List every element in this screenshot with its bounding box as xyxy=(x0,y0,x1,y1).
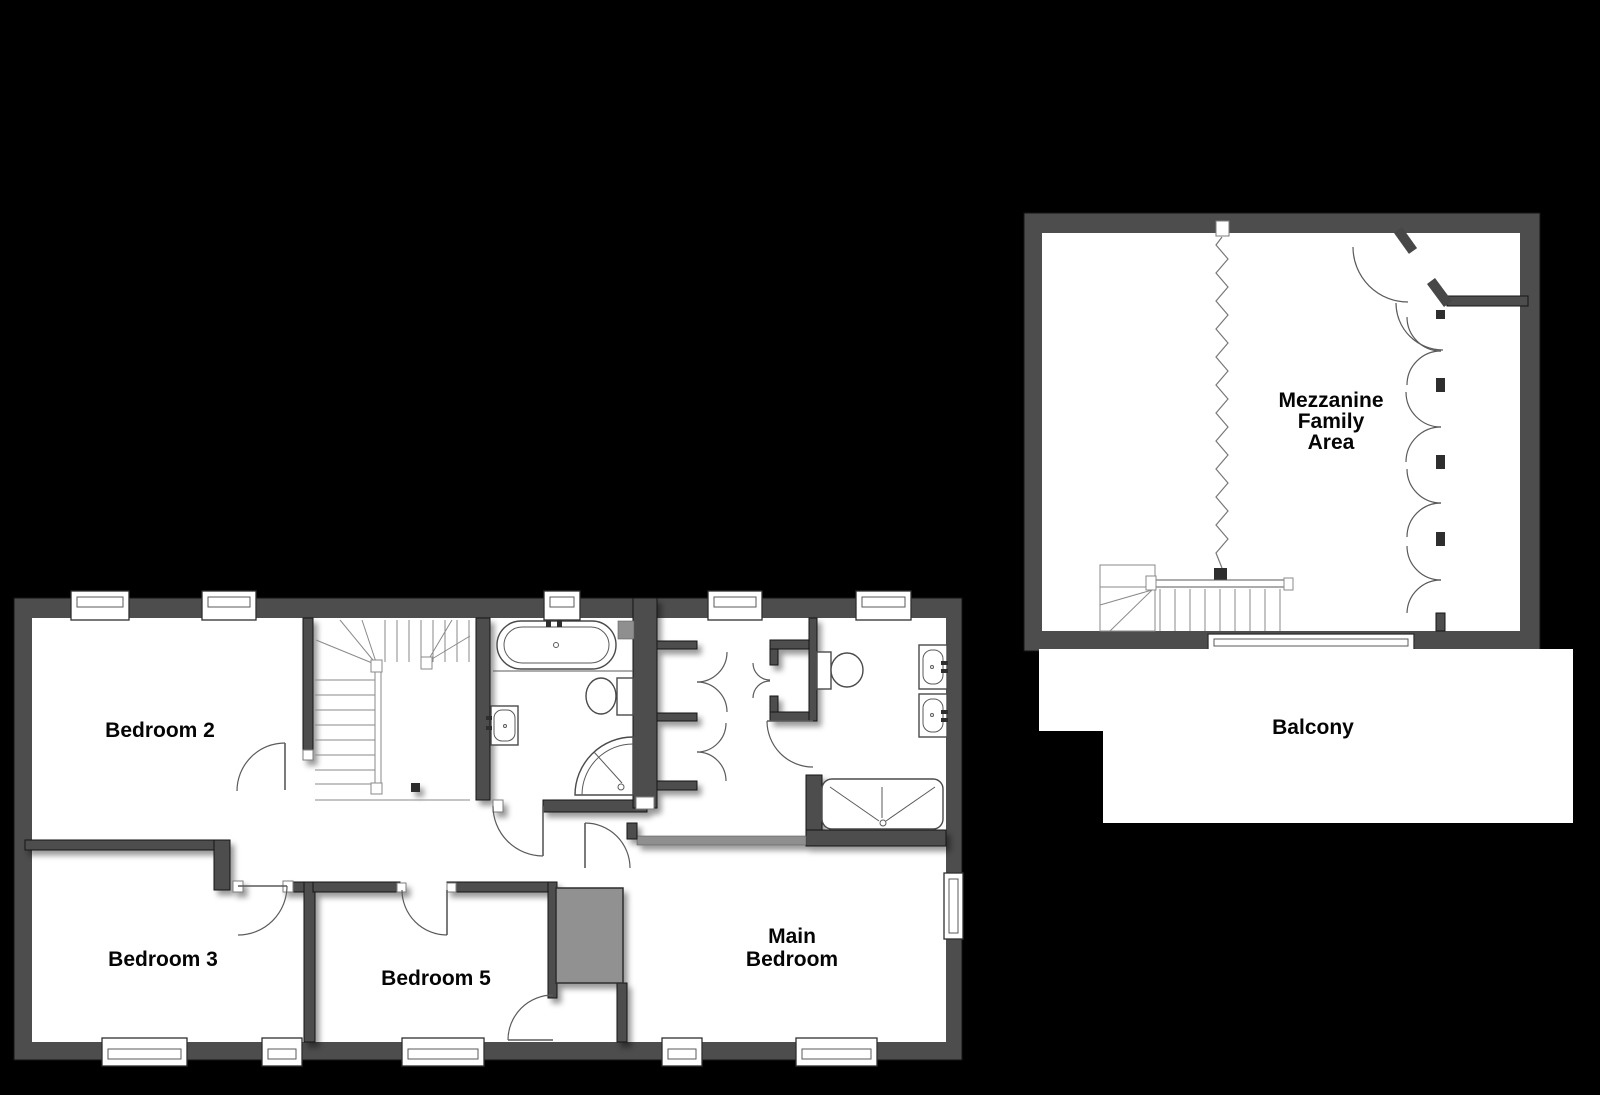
window xyxy=(262,1038,302,1066)
toilet-bathroom xyxy=(586,678,633,715)
small-room-wall xyxy=(1447,296,1528,306)
floorplan-canvas: Bedroom 2 Bedroom 3 Bedroom 5 Main Bedro… xyxy=(0,0,1600,1095)
bedroom-floor-plan: Bedroom 2 Bedroom 3 Bedroom 5 Main Bedro… xyxy=(14,591,963,1066)
window xyxy=(708,591,762,620)
tap-icon xyxy=(486,726,492,730)
window xyxy=(662,1038,702,1066)
tap-icon xyxy=(941,669,948,673)
toilet-ensuite xyxy=(817,652,863,689)
floorplan-svg: Bedroom 2 Bedroom 3 Bedroom 5 Main Bedro… xyxy=(0,0,1600,1095)
shower-tray xyxy=(822,779,943,829)
door-stop xyxy=(411,783,420,792)
room-label-bedroom3: Bedroom 3 xyxy=(108,948,218,971)
tap-icon xyxy=(486,716,492,720)
window xyxy=(71,591,129,620)
svg-text:Bedroom: Bedroom xyxy=(746,948,838,971)
mezzanine-plan: Mezzanine Family Area xyxy=(1024,213,1540,651)
room-label-balcony: Balcony xyxy=(1272,716,1354,739)
gray-stub-wall xyxy=(637,836,806,845)
svg-text:Main: Main xyxy=(768,925,816,948)
window xyxy=(102,1038,187,1066)
tap-icon xyxy=(941,661,948,665)
sink-ensuite-2 xyxy=(919,694,948,737)
void-block xyxy=(556,888,623,983)
bathtub xyxy=(497,615,616,669)
duct-block xyxy=(618,621,634,639)
window xyxy=(202,591,256,620)
svg-text:Mezzanine: Mezzanine xyxy=(1278,389,1383,412)
room-label-bedroom2: Bedroom 2 xyxy=(105,719,215,742)
tap-icon xyxy=(941,718,948,722)
svg-text:Area: Area xyxy=(1308,431,1355,454)
balcony-area: Balcony xyxy=(1039,649,1573,823)
sink-ensuite-1 xyxy=(919,645,948,689)
svg-text:Family: Family xyxy=(1298,410,1365,433)
window xyxy=(856,591,911,620)
balcony-window xyxy=(1208,634,1414,651)
tap-icon xyxy=(941,710,948,714)
window xyxy=(544,591,580,620)
window xyxy=(796,1038,877,1066)
window xyxy=(402,1038,484,1066)
window xyxy=(944,873,963,939)
sink-bathroom xyxy=(486,706,518,745)
room-label-bedroom5: Bedroom 5 xyxy=(381,967,491,990)
